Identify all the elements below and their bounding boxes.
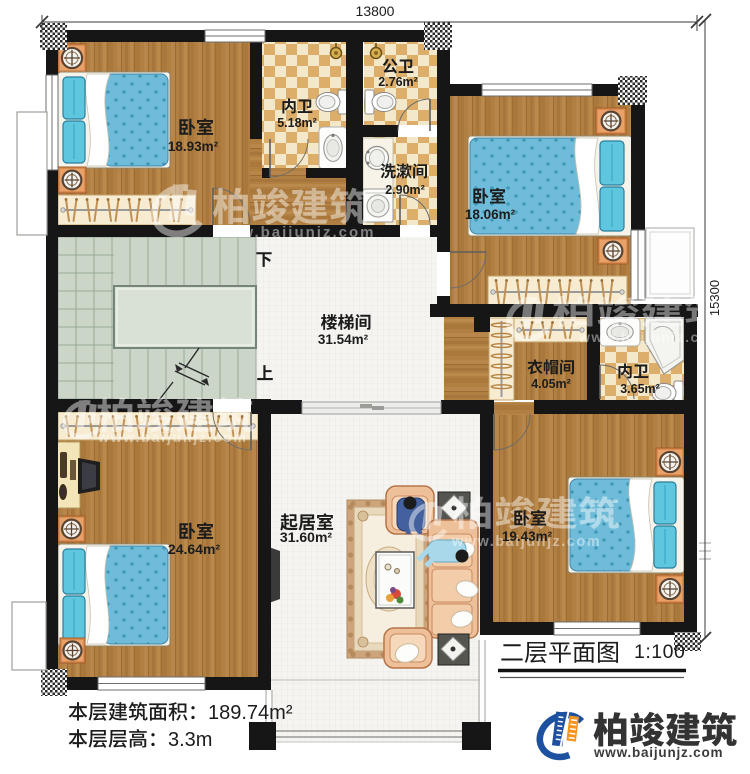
svg-text:189.74m²: 189.74m² — [208, 702, 293, 724]
svg-text:3.65m²: 3.65m² — [620, 382, 660, 396]
svg-text:19.43m²: 19.43m² — [502, 529, 553, 544]
svg-text:24.64m²: 24.64m² — [168, 541, 220, 557]
svg-text:5.18m²: 5.18m² — [277, 116, 317, 130]
svg-text:31.54m²: 31.54m² — [318, 332, 369, 347]
svg-text:www.baijunjz.com: www.baijunjz.com — [578, 329, 724, 345]
svg-text:3.3m: 3.3m — [168, 729, 212, 751]
svg-text:15300: 15300 — [707, 280, 722, 316]
svg-text:www.baijunjz.com: www.baijunjz.com — [213, 224, 375, 241]
svg-text:4.05m²: 4.05m² — [531, 377, 571, 391]
svg-text:www.baijunjz.com: www.baijunjz.com — [97, 429, 248, 445]
svg-text:www.baijunjz.com: www.baijunjz.com — [593, 745, 723, 760]
svg-text:18.93m²: 18.93m² — [168, 139, 219, 154]
svg-text:2.76m²: 2.76m² — [378, 75, 418, 89]
svg-text:1:100: 1:100 — [634, 641, 685, 663]
svg-text:13800: 13800 — [356, 3, 395, 19]
svg-text:18.06m²: 18.06m² — [465, 207, 516, 222]
svg-text:2.90m²: 2.90m² — [385, 183, 425, 197]
svg-text:31.60m²: 31.60m² — [280, 529, 332, 545]
